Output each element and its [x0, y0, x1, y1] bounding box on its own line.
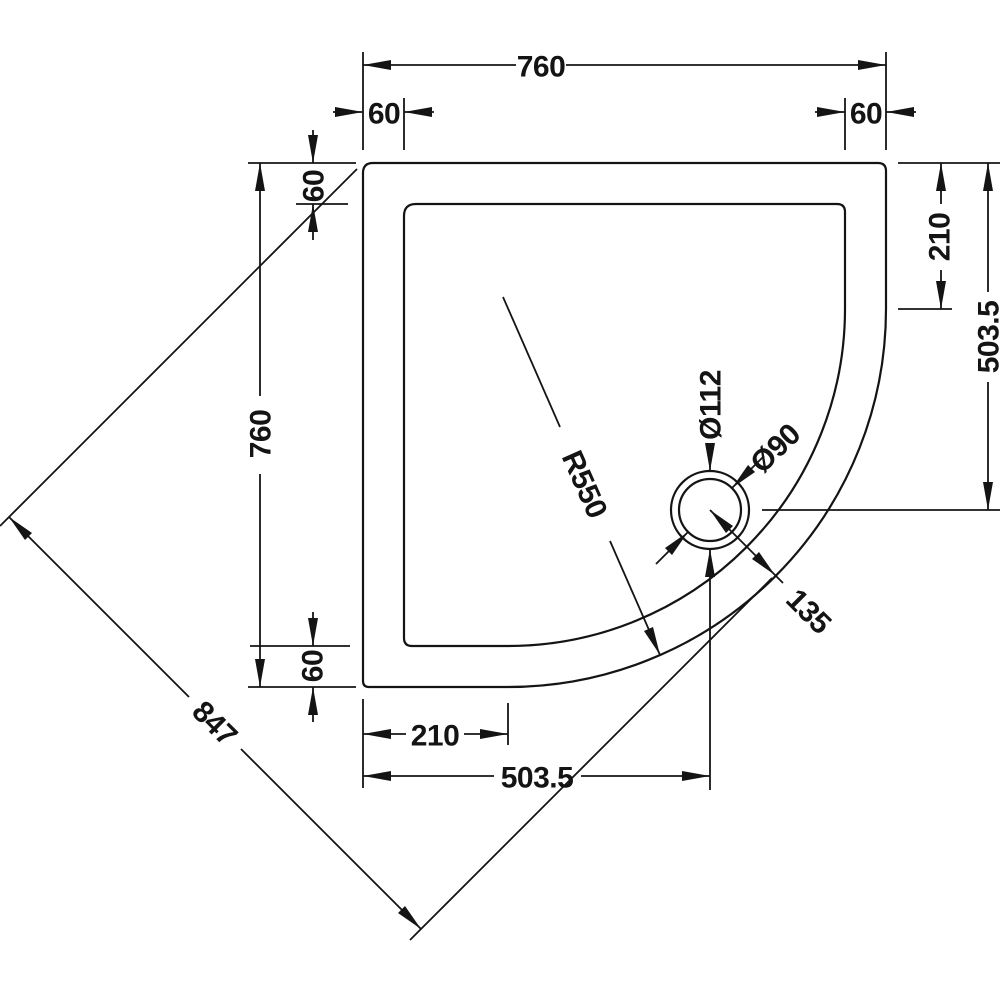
dim-label-left-bottom-rim: 60 — [297, 650, 330, 682]
dim-label-right-straight-edge: 210 — [924, 213, 957, 262]
dim-label-waste-outer-dia: Ø112 — [695, 370, 728, 440]
technical-drawing-page: 760 60 60 760 60 60 210 503.5 210 503.5 … — [0, 0, 1000, 1000]
dim-label-top-left-rim: 60 — [368, 98, 400, 131]
dim-label-left-top-rim: 60 — [298, 170, 331, 202]
dim-label-top-right-rim: 60 — [850, 98, 882, 131]
dim-label-bottom-waste-offset: 503.5 — [501, 762, 574, 795]
dim-label-bottom-straight-edge: 210 — [411, 720, 460, 753]
dim-label-right-waste-offset: 503.5 — [973, 301, 1000, 374]
dim-label-left-height: 760 — [245, 410, 278, 459]
dim-label-top-width: 760 — [517, 51, 566, 84]
quadrant-tray-dimension-drawing: 760 60 60 760 60 60 210 503.5 210 503.5 … — [0, 0, 1000, 1000]
